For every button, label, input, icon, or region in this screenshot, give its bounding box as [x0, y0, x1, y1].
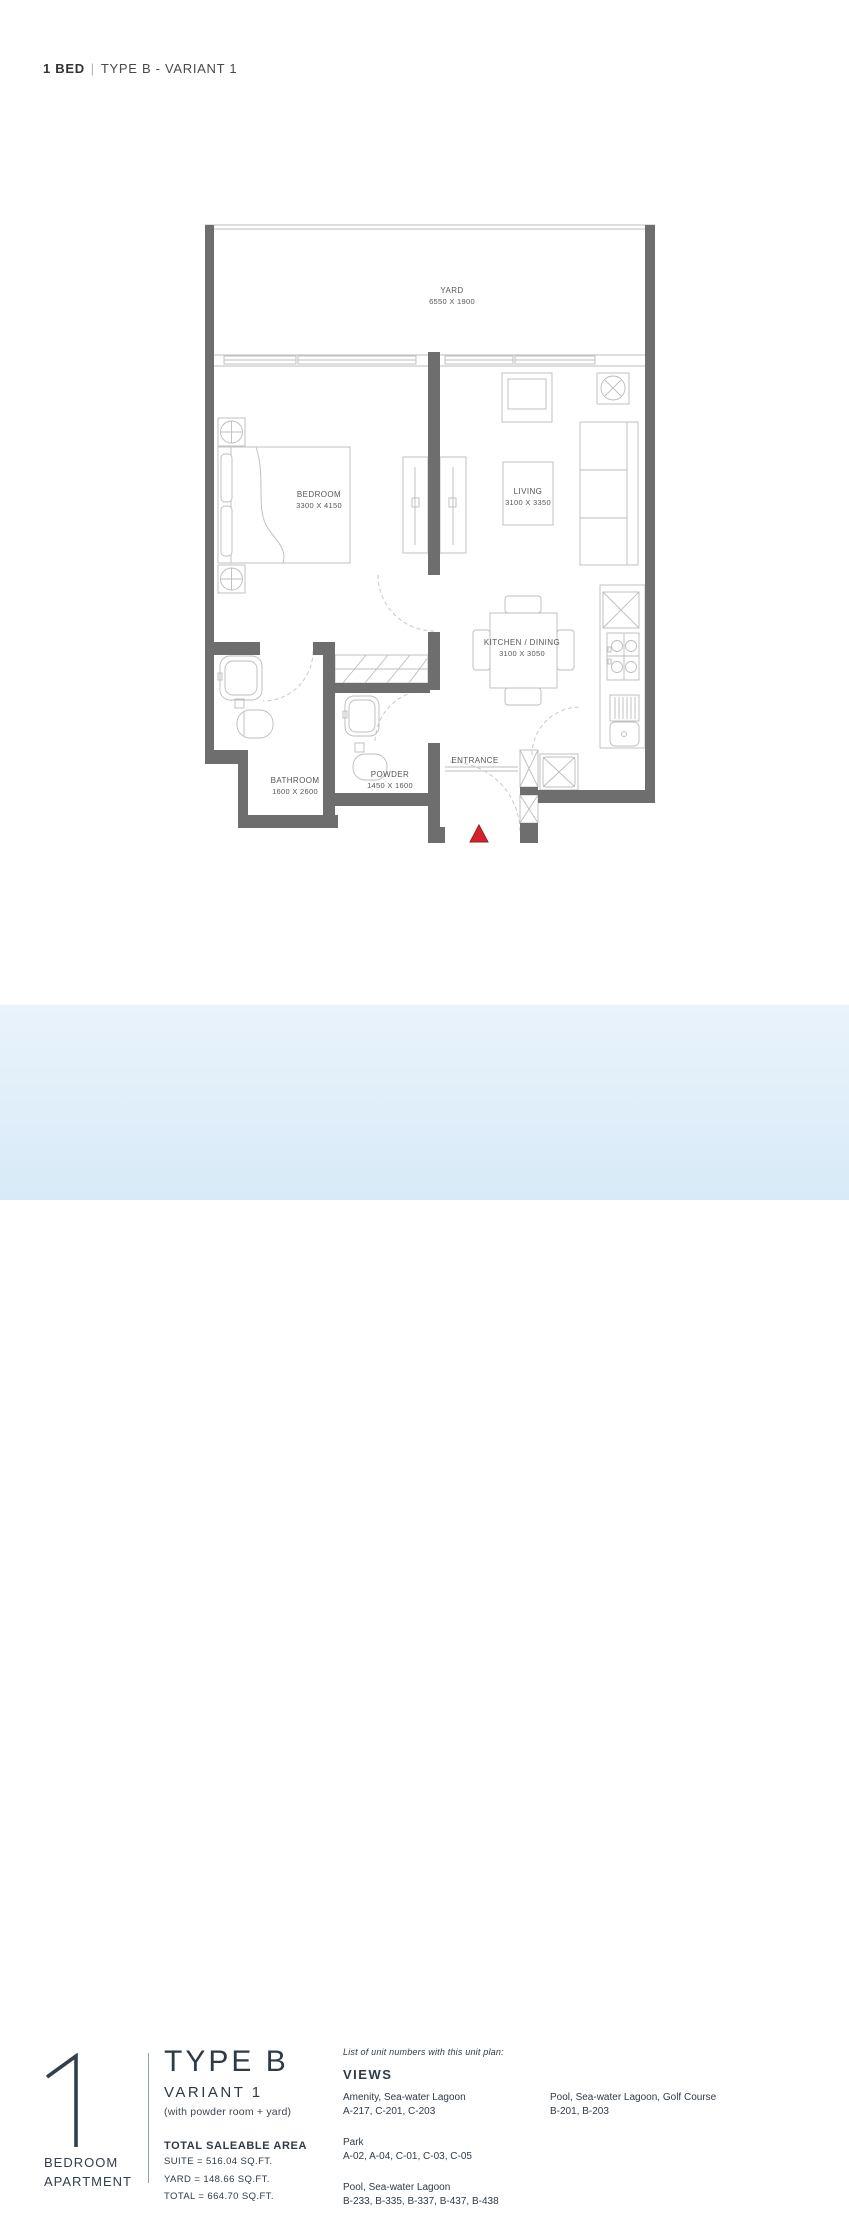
living-label: LIVING: [514, 487, 543, 496]
bathroom-dims: 1600 X 2600: [272, 787, 318, 796]
washer: [540, 754, 578, 790]
powder-sink: [343, 696, 379, 736]
vertical-divider: [148, 2053, 149, 2183]
unit-label-line2: APARTMENT: [44, 2172, 132, 2191]
title-type: TYPE B - VARIANT 1: [101, 61, 237, 76]
wardrobe-bedroom: [403, 457, 428, 553]
bedroom-dims: 3300 X 4150: [296, 501, 342, 510]
title-bed-count: 1 BED: [43, 61, 85, 76]
yard-boundary: [205, 225, 655, 229]
bathroom-label: BATHROOM: [271, 776, 320, 785]
summary-panel: 1 BEDROOM APARTMENT TYPE B VARIANT 1 (wi…: [0, 1005, 849, 1200]
views-column-1: Amenity, Sea-water Lagoon A-217, C-201, …: [343, 2091, 543, 2226]
view-units: A-02, A-04, C-01, C-03, C-05: [343, 2150, 543, 2164]
entrance-label: ENTRANCE: [451, 756, 498, 765]
yard-label: YARD: [440, 286, 463, 295]
floor-plan: YARD 6550 X 1900 BEDROOM 3300 X 4150 LIV…: [198, 215, 658, 855]
views-column-2: Pool, Sea-water Lagoon, Golf Course B-20…: [550, 2091, 810, 2136]
view-group: Amenity, Sea-water Lagoon A-217, C-201, …: [343, 2091, 543, 2119]
type-title: TYPE B: [164, 2045, 307, 2079]
yard-dims: 6550 X 1900: [429, 297, 475, 306]
bedroom-count-numeral: 1: [44, 2053, 88, 2154]
area-title: TOTAL SALEABLE AREA: [164, 2140, 307, 2152]
numeral-one-icon: [44, 2053, 88, 2149]
wardrobe-living: [440, 457, 466, 553]
kitchen-dims: 3100 X 3050: [499, 649, 545, 658]
views-block: List of unit numbers with this unit plan…: [343, 2047, 823, 2082]
living-dims: 3100 X 3350: [505, 498, 551, 507]
shaft-hatch: [335, 655, 428, 683]
powder-dims: 1450 X 1600: [367, 781, 413, 790]
type-block: TYPE B VARIANT 1 (with powder room + yar…: [164, 2045, 307, 2205]
bedroom-label: BEDROOM: [297, 490, 341, 499]
bathroom-vanity: [218, 656, 262, 700]
variant-note: (with powder room + yard): [164, 2106, 307, 2118]
view-name: Amenity, Sea-water Lagoon: [343, 2091, 543, 2105]
powder-label: POWDER: [371, 770, 409, 779]
armchair: [502, 373, 552, 422]
sofa: [580, 422, 638, 565]
stove: [607, 633, 639, 680]
area-suite: SUITE = 516.04 SQ.FT.: [164, 2155, 307, 2170]
lamp-table: [597, 373, 629, 404]
area-yard: YARD = 148.66 SQ.FT.: [164, 2173, 307, 2188]
title-separator: |: [91, 61, 95, 76]
unit-label-line1: BEDROOM: [44, 2153, 132, 2172]
area-total: TOTAL = 664.70 SQ.FT.: [164, 2190, 307, 2205]
view-group: Pool, Sea-water Lagoon B-233, B-335, B-3…: [343, 2181, 543, 2209]
fridge: [603, 592, 639, 628]
views-intro: List of unit numbers with this unit plan…: [343, 2047, 823, 2057]
unit-type-label: BEDROOM APARTMENT: [44, 2153, 132, 2191]
kitchen-label: KITCHEN / DINING: [484, 638, 560, 647]
view-units: B-233, B-335, B-337, B-437, B-438: [343, 2195, 543, 2209]
variant-title: VARIANT 1: [164, 2084, 307, 2101]
view-name: Pool, Sea-water Lagoon, Golf Course: [550, 2091, 810, 2105]
page-title: 1 BED|TYPE B - VARIANT 1: [43, 61, 237, 76]
drainer: [610, 695, 639, 721]
views-title: VIEWS: [343, 2067, 823, 2082]
nightstand-top: [218, 418, 245, 446]
view-group: Pool, Sea-water Lagoon, Golf Course B-20…: [550, 2091, 810, 2119]
nightstand-bottom: [218, 565, 245, 593]
sink: [610, 722, 639, 746]
view-units: A-217, C-201, C-203: [343, 2105, 543, 2119]
view-units: B-201, B-203: [550, 2105, 810, 2119]
entrance-marker-icon: [470, 825, 488, 842]
view-name: Pool, Sea-water Lagoon: [343, 2181, 543, 2195]
view-group: Park A-02, A-04, C-01, C-03, C-05: [343, 2136, 543, 2164]
bathroom-toilet: [235, 699, 273, 738]
view-name: Park: [343, 2136, 543, 2150]
